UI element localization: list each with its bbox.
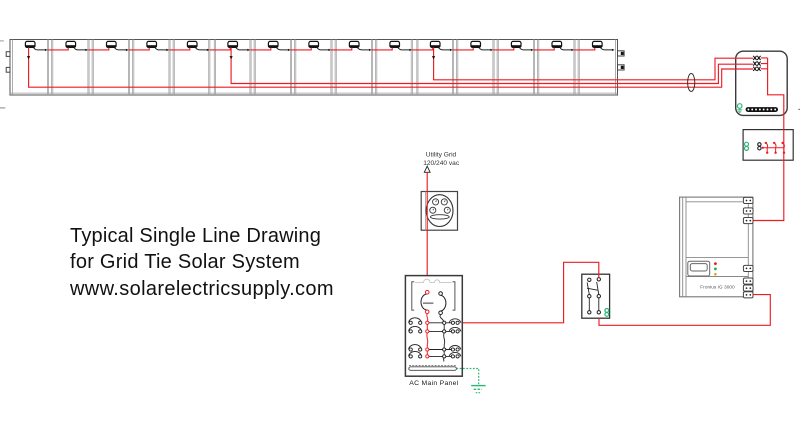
svg-text:Fronius IG 3000: Fronius IG 3000 bbox=[700, 285, 735, 290]
svg-text:120/240 vac: 120/240 vac bbox=[423, 160, 460, 167]
svg-text:Utility Grid: Utility Grid bbox=[426, 152, 457, 159]
svg-text:AC Main Panel: AC Main Panel bbox=[409, 380, 458, 387]
